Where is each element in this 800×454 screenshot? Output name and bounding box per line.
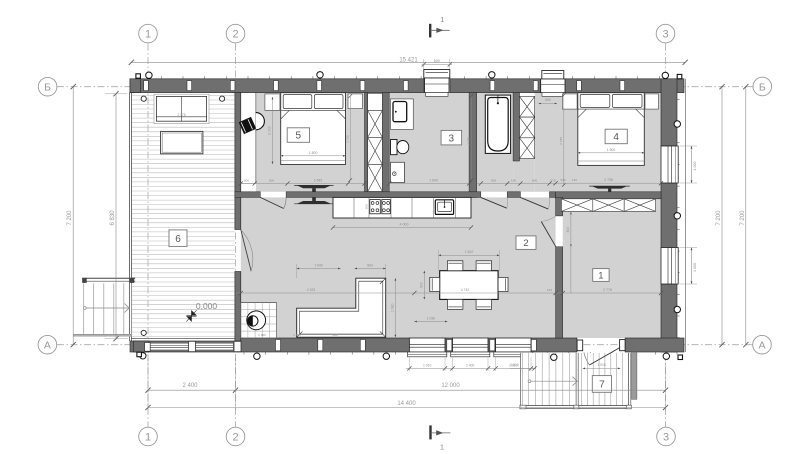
svg-text:3: 3	[663, 431, 669, 443]
svg-text:Б: Б	[44, 82, 51, 94]
svg-text:14 400: 14 400	[397, 401, 416, 407]
svg-text:4 742: 4 742	[461, 288, 470, 292]
svg-text:1 010: 1 010	[510, 363, 519, 367]
svg-text:1 000: 1 000	[693, 162, 697, 171]
svg-text:4 323: 4 323	[307, 288, 316, 292]
svg-text:1 800: 1 800	[309, 151, 318, 155]
svg-text:1 640: 1 640	[314, 263, 323, 267]
svg-text:1 030: 1 030	[427, 316, 436, 320]
svg-text:1: 1	[440, 15, 444, 24]
svg-text:2 545: 2 545	[314, 178, 323, 182]
svg-text:1: 1	[440, 443, 444, 452]
svg-text:900: 900	[419, 282, 423, 288]
svg-text:12 000: 12 000	[441, 383, 460, 389]
svg-text:900: 900	[491, 178, 496, 182]
svg-text:6: 6	[175, 234, 181, 245]
svg-text:1: 1	[145, 431, 151, 443]
svg-text:1 602: 1 602	[465, 250, 474, 254]
svg-text:15 421: 15 421	[399, 58, 418, 64]
svg-text:1 010: 1 010	[423, 364, 432, 368]
svg-text:940: 940	[332, 333, 337, 337]
svg-text:2 000: 2 000	[268, 126, 272, 135]
svg-text:2 735: 2 735	[559, 137, 563, 145]
svg-text:А: А	[44, 340, 51, 352]
svg-text:600: 600	[244, 178, 249, 182]
svg-text:800: 800	[566, 227, 570, 233]
svg-text:5: 5	[296, 131, 302, 142]
svg-text:2 175: 2 175	[178, 113, 186, 117]
svg-text:6 830: 6 830	[110, 210, 116, 226]
svg-text:7 200: 7 200	[740, 210, 746, 226]
svg-text:140: 140	[572, 178, 577, 182]
svg-text:1 000: 1 000	[693, 263, 697, 272]
svg-text:3: 3	[449, 133, 455, 144]
svg-text:804: 804	[367, 263, 373, 267]
svg-text:600: 600	[545, 98, 551, 102]
svg-text:600: 600	[364, 204, 368, 209]
svg-text:1 480: 1 480	[258, 333, 266, 337]
svg-text:2 735: 2 735	[346, 135, 350, 143]
svg-text:2: 2	[523, 238, 528, 249]
svg-text:570: 570	[550, 178, 555, 182]
svg-text:1: 1	[145, 28, 151, 40]
svg-text:540: 540	[560, 178, 565, 182]
svg-text:1 630: 1 630	[390, 303, 394, 312]
svg-text:1 400: 1 400	[466, 364, 475, 368]
svg-text:7 200: 7 200	[67, 210, 73, 226]
svg-text:1 800: 1 800	[607, 148, 616, 152]
svg-text:7: 7	[599, 380, 605, 391]
svg-text:162: 162	[547, 288, 552, 292]
svg-text:1 540: 1 540	[429, 178, 438, 182]
svg-text:800: 800	[269, 178, 274, 182]
svg-text:Б: Б	[759, 81, 766, 93]
svg-text:600: 600	[434, 59, 440, 63]
svg-text:2 778: 2 778	[603, 288, 612, 292]
svg-text:7 200: 7 200	[716, 210, 722, 226]
svg-text:1: 1	[598, 270, 603, 281]
svg-text:800: 800	[532, 178, 537, 182]
svg-text:190: 190	[511, 178, 516, 182]
svg-text:4 000: 4 000	[400, 222, 409, 226]
svg-text:4: 4	[613, 132, 619, 143]
svg-text:1 010: 1 010	[597, 363, 606, 367]
svg-text:0,000: 0,000	[196, 301, 218, 311]
svg-text:3: 3	[662, 28, 668, 40]
svg-text:1 480: 1 480	[293, 333, 301, 337]
svg-text:2 400: 2 400	[182, 383, 198, 389]
svg-text:2 735: 2 735	[467, 137, 471, 145]
svg-text:2 738: 2 738	[604, 178, 613, 182]
svg-text:А: А	[758, 340, 765, 352]
svg-text:2: 2	[232, 28, 238, 40]
svg-text:2: 2	[232, 431, 238, 443]
